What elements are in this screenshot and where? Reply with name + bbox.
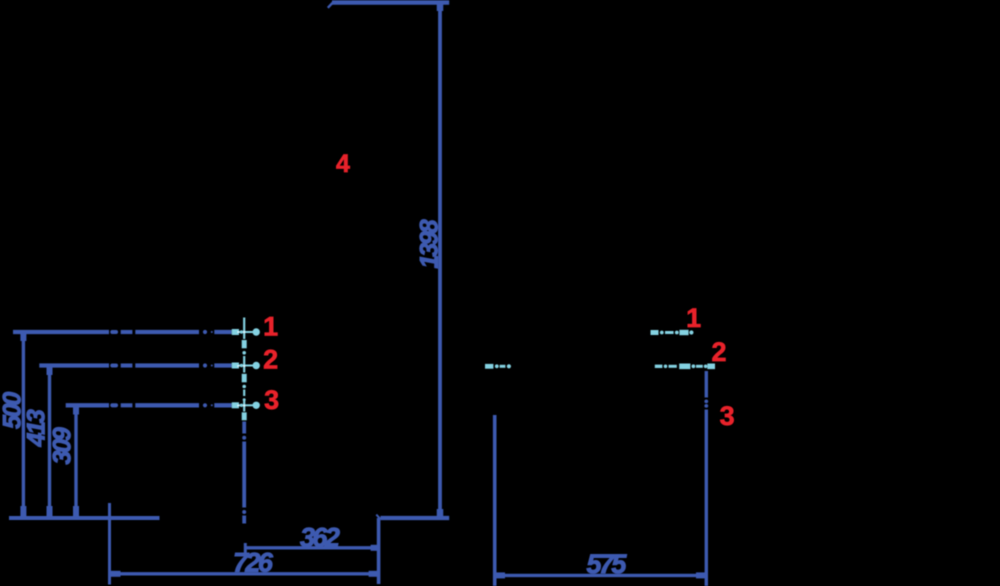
svg-text:3: 3 [720, 401, 735, 431]
svg-text:575: 575 [587, 549, 628, 579]
svg-text:2: 2 [711, 337, 726, 367]
svg-text:4: 4 [336, 150, 350, 178]
svg-text:726: 726 [233, 548, 274, 578]
svg-text:362: 362 [300, 523, 340, 553]
svg-text:1398: 1398 [416, 219, 444, 268]
svg-text:309: 309 [49, 427, 77, 464]
svg-text:3: 3 [264, 385, 279, 415]
svg-text:413: 413 [23, 409, 51, 447]
svg-text:2: 2 [263, 344, 278, 374]
svg-text:1: 1 [686, 303, 701, 333]
svg-text:1: 1 [263, 312, 278, 342]
